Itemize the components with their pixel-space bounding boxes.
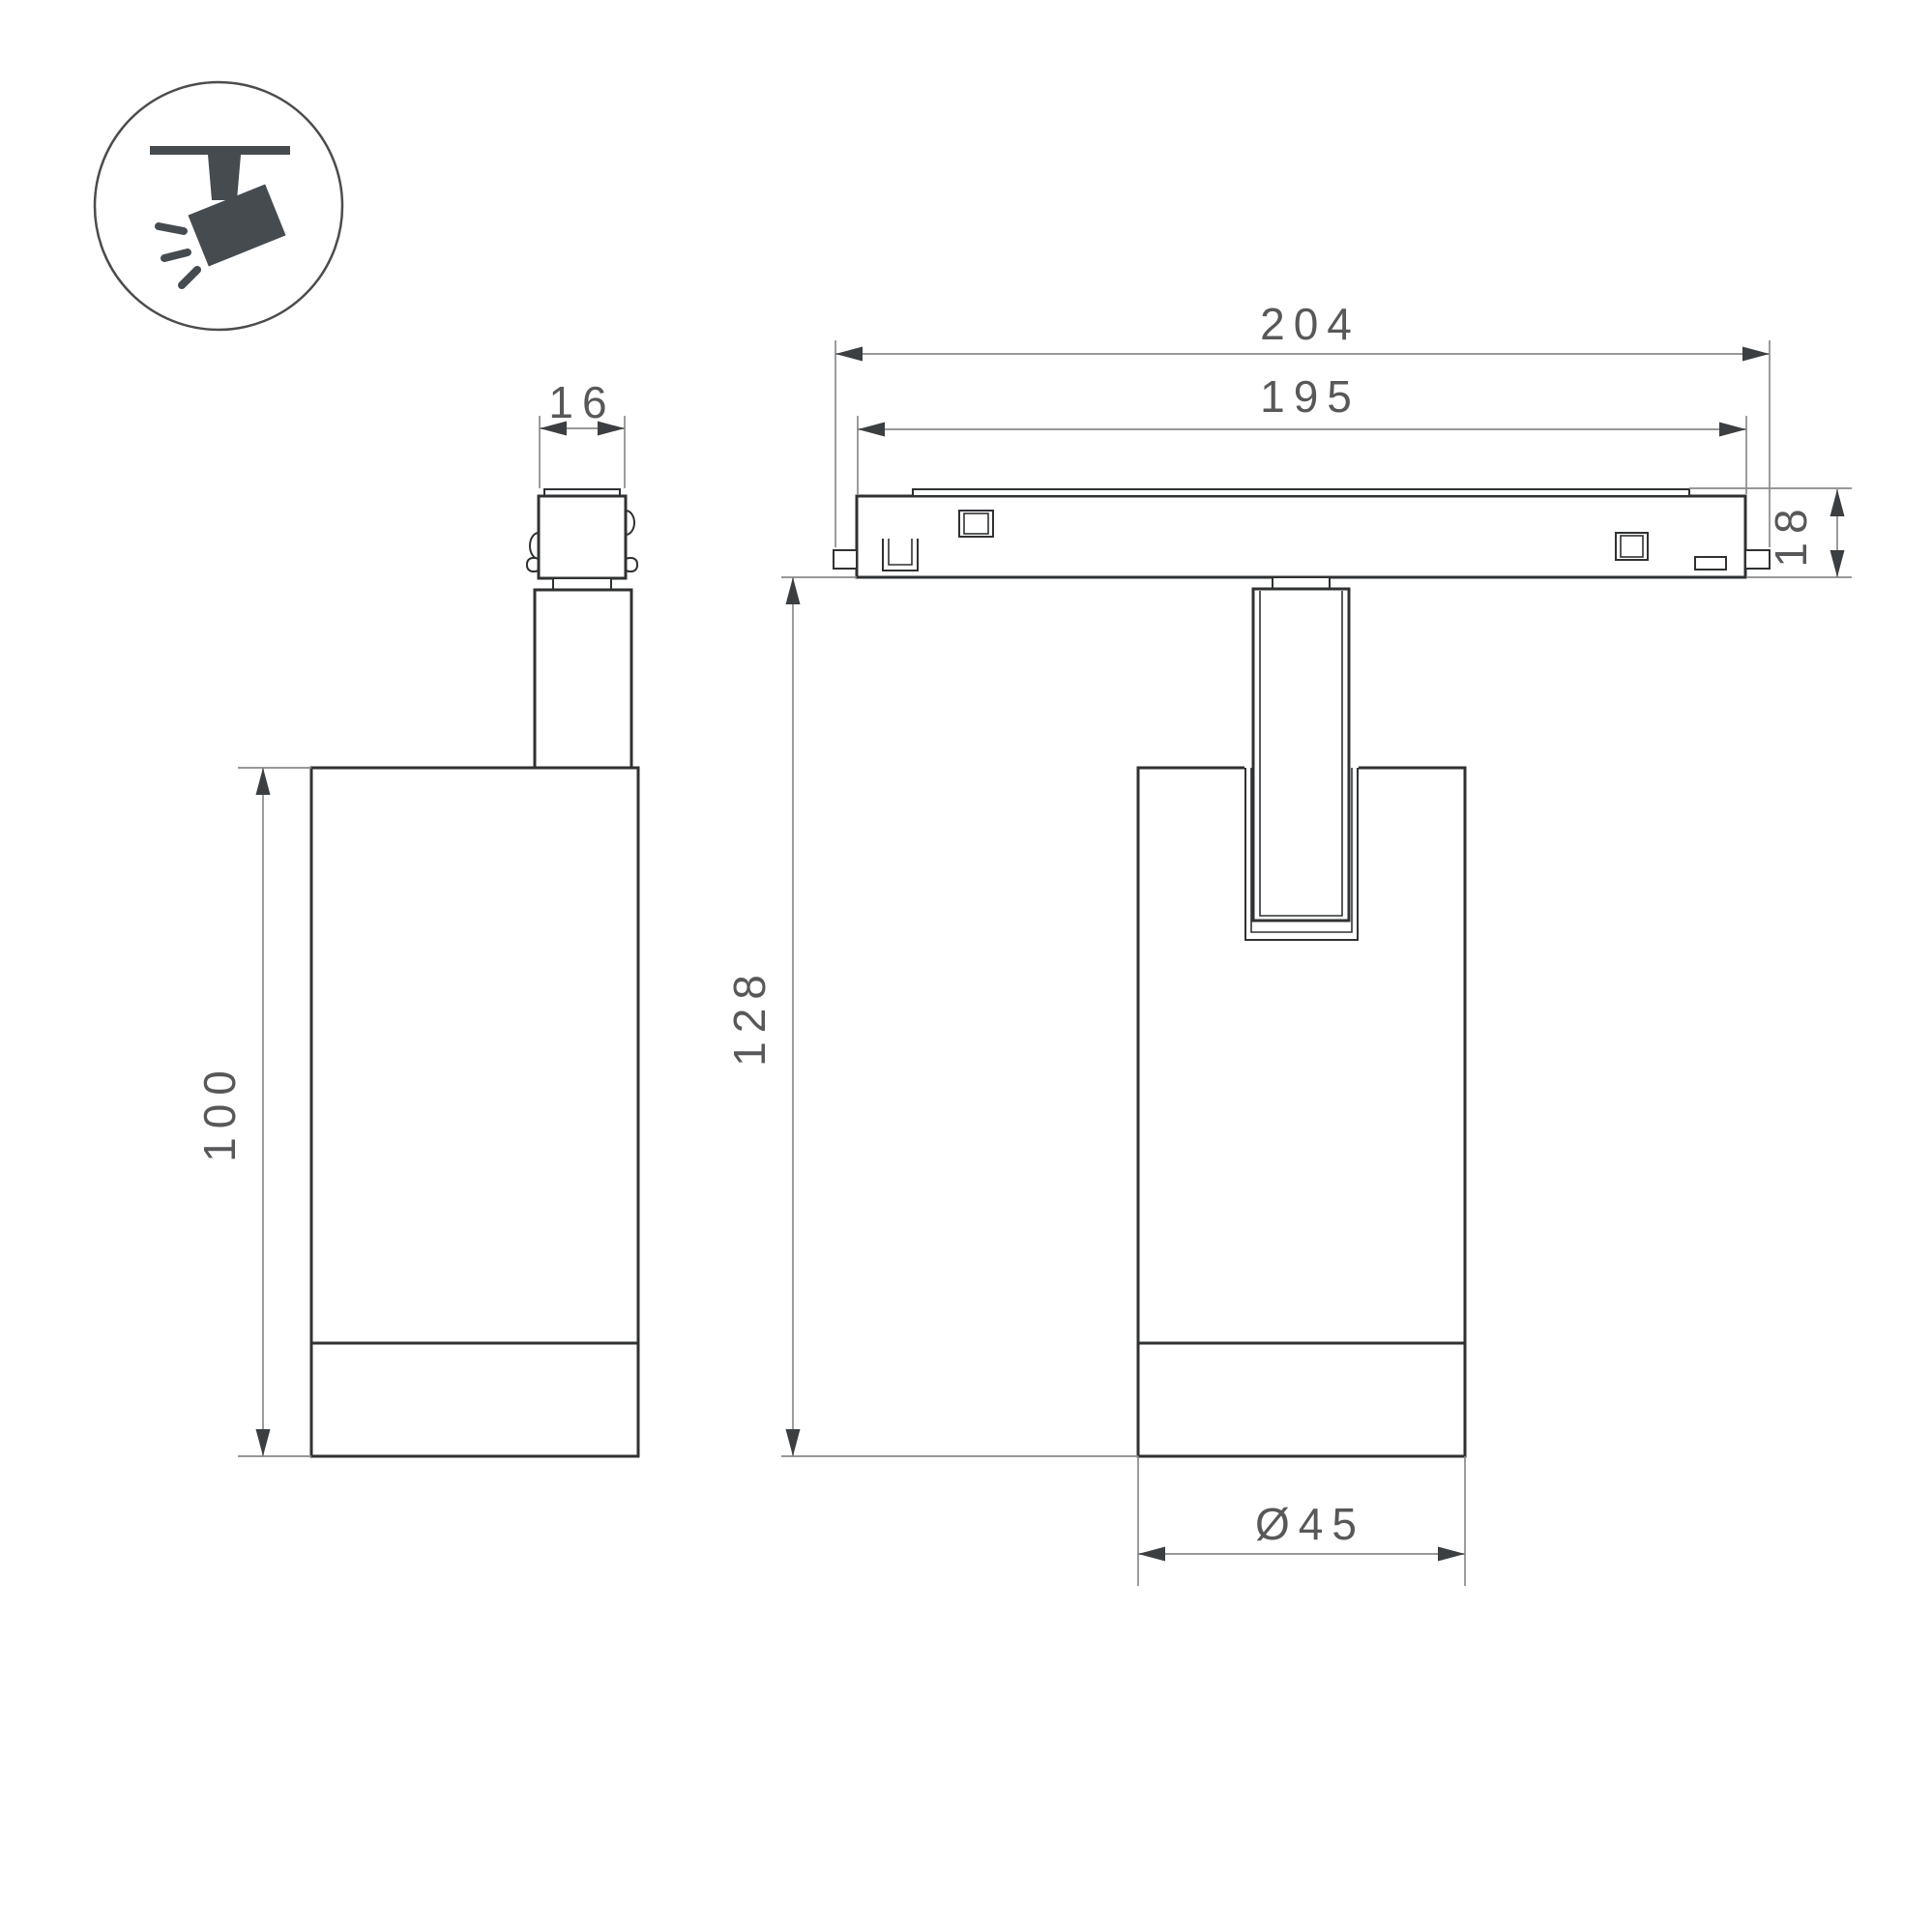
dim-label-body-height: 100 [194, 1062, 245, 1162]
arrow-left [858, 423, 885, 437]
arrow-left [1138, 1547, 1165, 1562]
arrow-up [1830, 489, 1845, 516]
icon-track-bar [150, 146, 290, 155]
dim-label-track-body: 195 [1260, 371, 1361, 422]
arrow-right [1438, 1547, 1465, 1562]
track-top-plate [913, 489, 1689, 496]
fixture-type-icon [95, 82, 342, 330]
arm-mount-nub [1273, 577, 1330, 589]
dimension-drawing: 16 100 [0, 0, 1932, 1932]
track-endcap-left [834, 550, 857, 569]
arrow-up [786, 577, 801, 604]
arrow-right [1742, 347, 1770, 362]
arm-stem [1253, 589, 1349, 921]
dim-label-overall-height: 128 [724, 966, 775, 1067]
dim-label-adapter-width: 16 [548, 377, 615, 427]
track-adapter [539, 496, 626, 578]
icon-stem [208, 155, 241, 200]
arm-neck [553, 578, 611, 590]
arm-stem [535, 590, 631, 768]
dim-label-track-height: 18 [1766, 500, 1816, 567]
arrow-down [786, 1429, 801, 1456]
side-view [311, 489, 638, 1456]
dim-label-track-overall: 204 [1260, 299, 1361, 349]
front-view [834, 489, 1770, 1456]
icon-ray [159, 226, 184, 231]
arrow-right [1719, 423, 1746, 437]
arrow-left [835, 347, 863, 362]
arrow-down [256, 1429, 271, 1456]
spot-body [311, 768, 638, 1456]
arrow-down [1830, 550, 1845, 577]
arrow-up [256, 768, 271, 795]
dimension-drawing-page: 16 100 [0, 0, 1932, 1932]
dim-label-body-diameter: Ø45 [1255, 1499, 1365, 1549]
